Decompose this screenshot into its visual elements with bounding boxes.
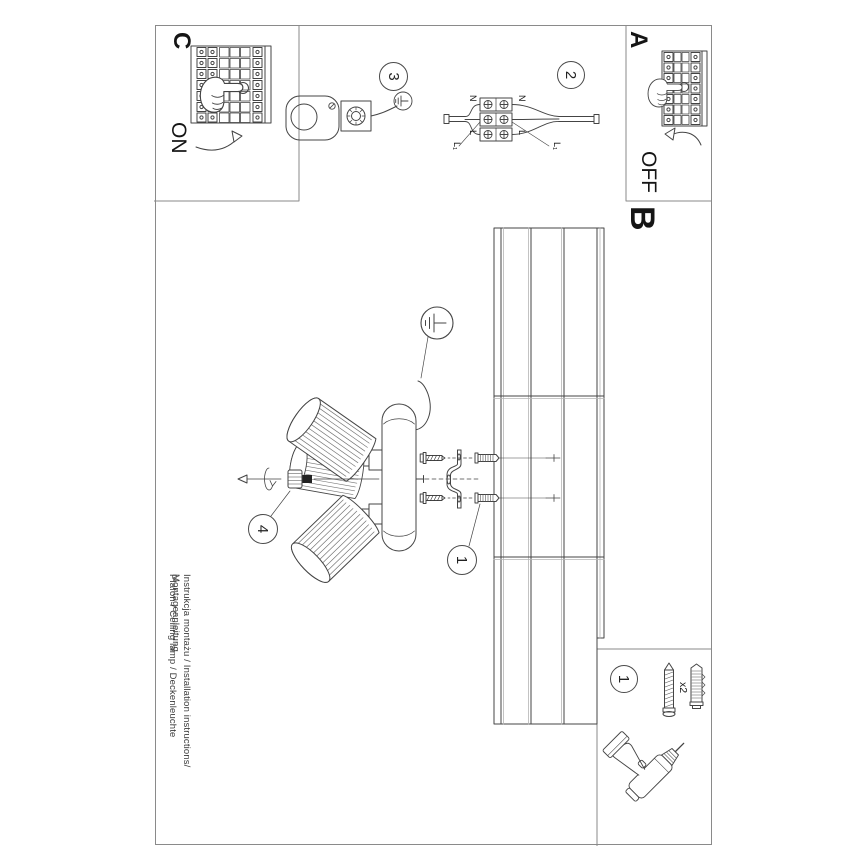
line-art-layer — [154, 26, 711, 846]
drill-hole-marks — [499, 455, 560, 502]
power-on-label: ON — [168, 122, 189, 154]
power-off-label: OFF — [638, 151, 659, 193]
step-1-badge: 1 — [447, 545, 477, 575]
ground-symbol-icon — [396, 96, 408, 106]
terminal-n-bottom-label: N — [468, 95, 477, 102]
step-2-badge: 2 — [557, 61, 585, 89]
on-arrow-icon — [196, 131, 242, 150]
breaker-panel-a-drawing — [648, 51, 707, 145]
breaker-panel-c-drawing — [191, 46, 271, 150]
parts-step-1-badge: 1 — [610, 665, 638, 693]
footer-product-line: Plafon / Ceiling lamp / Deckenleuchte — [167, 574, 178, 737]
canopy-pin — [416, 476, 424, 483]
canopy-drawing — [382, 404, 416, 551]
section-a-label: A — [626, 31, 650, 48]
shade-drawing — [286, 493, 382, 588]
terminal-l-top-label: L — [517, 130, 526, 135]
ground-symbol-icon — [426, 314, 447, 332]
terminal-l1-bottom-label: L₁ — [452, 142, 461, 150]
mounting-hardware-drawing — [419, 450, 560, 546]
section-b-label: B — [625, 206, 659, 231]
rotation-arrow-icon — [238, 468, 281, 490]
wall-plug-drawing — [475, 493, 499, 503]
terminal-l-bottom-label: L — [468, 130, 477, 135]
wall-plug-drawing — [475, 453, 499, 463]
lamp-holder-drawing — [286, 92, 412, 140]
section-borders — [154, 26, 711, 846]
grounding-callout — [421, 307, 453, 378]
screw-drawing — [420, 453, 445, 464]
section-c-label: C — [169, 32, 193, 49]
off-arrow-icon — [665, 128, 701, 145]
hand-icon — [200, 77, 243, 112]
ceiling-planks-drawing — [494, 228, 604, 724]
drill-drawing — [593, 706, 691, 804]
terminal-block-drawing — [444, 98, 599, 146]
terminal-l1-top-label: L₁ — [552, 142, 561, 150]
step4-leader-line — [271, 491, 290, 516]
screw-part-drawing — [663, 663, 675, 717]
instruction-sheet: A B C OFF ON 2 3 4 1 1 N L L₁ N L L₁ x2 … — [155, 25, 712, 845]
screw-drawing — [420, 493, 445, 504]
step1-leader-line — [469, 504, 480, 546]
parts-quantity-label: x2 — [678, 682, 689, 693]
ceiling-lamp-drawing — [238, 307, 453, 588]
screenshot-root: { "document": { "type": "installation-in… — [0, 0, 868, 868]
power-cable-drawing — [415, 381, 430, 430]
step-4-badge: 4 — [248, 514, 278, 544]
wall-plug-part-drawing — [690, 664, 705, 709]
terminal-n-top-label: N — [517, 95, 526, 102]
step-3-badge: 3 — [379, 62, 408, 91]
